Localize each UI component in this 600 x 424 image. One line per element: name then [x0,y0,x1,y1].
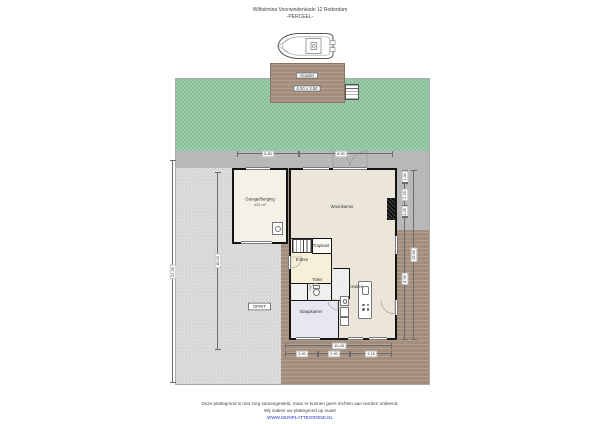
garage-door [241,241,272,245]
fireplace-icon [387,198,395,220]
page-title: Wilhelmina Voorwindenkade 12 Rotterdam -… [0,7,600,20]
trapkast-label: Trapkast [313,243,329,248]
stairs-icon [292,239,312,253]
living-window-top [303,167,329,171]
dim-bottom-seg2: 2.90 [318,353,350,354]
wall [333,268,349,269]
dim-left-total: 21.30 [172,160,173,383]
closet-floor [292,283,308,300]
keuken-label: Keuken [349,284,363,289]
wall [331,238,332,300]
footer-disclaimer: Deze plattegrond is met zorg samengestel… [0,401,600,408]
kitchen-door-right [395,300,399,315]
dock-size-text: 6.00 x 3.50 [296,86,317,91]
kitchen-window-bottom-2 [369,337,387,341]
dim-right-seg2: 2.25 [404,183,405,206]
dim-top-house: 8.90 [299,153,393,154]
entree-label: Entree [296,257,309,262]
garage-size-text: ±32 m² [245,202,275,206]
garage-label: Garage/berging ±32 m² [245,197,275,206]
living-window-right [395,236,399,254]
slaapkamer-label: Slaapkamer [300,309,323,314]
wc-icon [312,285,321,296]
front-door-opening [288,256,292,269]
dock-name-label: Vlonder [296,73,318,79]
wall [312,253,332,254]
shower-floor [333,268,349,298]
hob-icon [362,304,364,306]
dim-driveway: 18.00 [217,172,218,350]
kitchen-window-bottom-1 [348,337,363,341]
dock-area [270,63,345,103]
fridge-icon [340,307,350,317]
dock-name-text: Vlonder [300,73,315,78]
dim-bottom-seg3: 4.15 [350,353,392,354]
footer-link: WWW.MIJNPLATTEGROND.NL [0,415,600,422]
garage-window [246,167,270,171]
dock-stairs-icon [345,84,359,100]
cabinet-icon [340,317,350,326]
garden-doors-opening [333,167,367,171]
floorplan-canvas: Wilhelmina Voorwindenkade 12 Rotterdam -… [0,0,600,424]
dim-bottom-seg1: 3.40 [285,353,318,354]
woonkamer-label: Woonkamer [331,204,354,209]
bedroom-floor [292,300,339,338]
boiler-icon [272,222,283,235]
footer-tagline: Wij maken uw plattegrond op maat! [0,408,600,415]
dim-top-garage: 5.80 [237,153,299,154]
dim-bottom-total: 10.45 [285,345,392,346]
dim-right-seg4: 8.95 [404,217,405,340]
dim-right-seg1: 1.30 [404,170,405,183]
wall [291,283,332,284]
title-subtitle: -PERCEEL- [0,14,600,21]
footer: Deze plattegrond is met zorg samengestel… [0,401,600,422]
boat-icon [276,31,338,61]
toilet-label: Toilet [312,277,322,282]
wall [307,283,308,300]
dim-right-seg3: 1.05 [404,206,405,217]
dim-right-total: 13.55 [413,170,414,340]
dock-size-label: 6.00 x 3.50 [293,86,320,92]
driveway-label: OPRIT [248,303,271,311]
driveway-label-text: OPRIT [253,304,266,309]
oven-icon [340,296,350,306]
bedroom-window-bottom [296,337,320,341]
